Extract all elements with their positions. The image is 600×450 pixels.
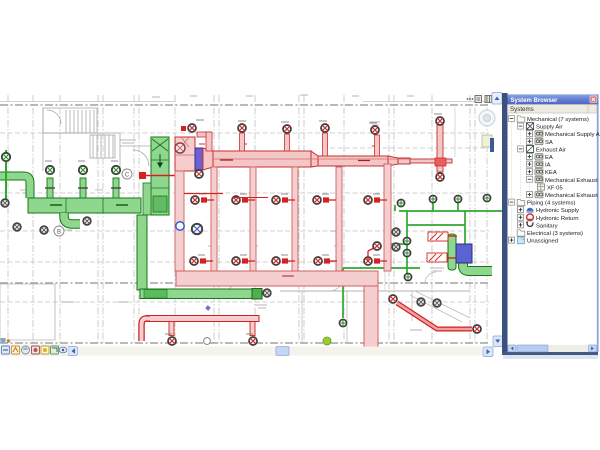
svg-text:Hydronic Return: Hydronic Return xyxy=(536,216,579,222)
svg-text:Mechanical (7 systems): Mechanical (7 systems) xyxy=(527,117,589,123)
svg-text:IA: IA xyxy=(545,163,551,169)
svg-text:Unassigned: Unassigned xyxy=(527,239,558,245)
svg-text:B: B xyxy=(57,230,61,236)
svg-text:C: C xyxy=(125,173,130,179)
svg-text:Sanitary: Sanitary xyxy=(536,223,558,229)
svg-text:Mechanical Supply A...: Mechanical Supply A... xyxy=(545,132,600,138)
svg-text:Piping (4 systems): Piping (4 systems) xyxy=(527,201,575,207)
svg-text:Electrical (3 systems): Electrical (3 systems) xyxy=(527,231,583,237)
svg-text:Hydronic Supply: Hydronic Supply xyxy=(536,208,579,214)
svg-text:Exhaust Air: Exhaust Air xyxy=(536,147,566,153)
svg-text:SA: SA xyxy=(545,140,553,146)
svg-text:EA: EA xyxy=(545,155,553,161)
svg-text:Supply Air: Supply Air xyxy=(536,125,563,131)
svg-text:Mechanical Exhaust ...: Mechanical Exhaust ... xyxy=(545,193,600,199)
svg-text:Systems: Systems xyxy=(510,106,534,113)
svg-text:System Browser: System Browser xyxy=(511,98,559,104)
svg-text:XF 05: XF 05 xyxy=(547,185,563,191)
svg-text:Mechanical Exhaust ...: Mechanical Exhaust ... xyxy=(545,178,600,184)
svg-text:KEA: KEA xyxy=(545,170,557,176)
